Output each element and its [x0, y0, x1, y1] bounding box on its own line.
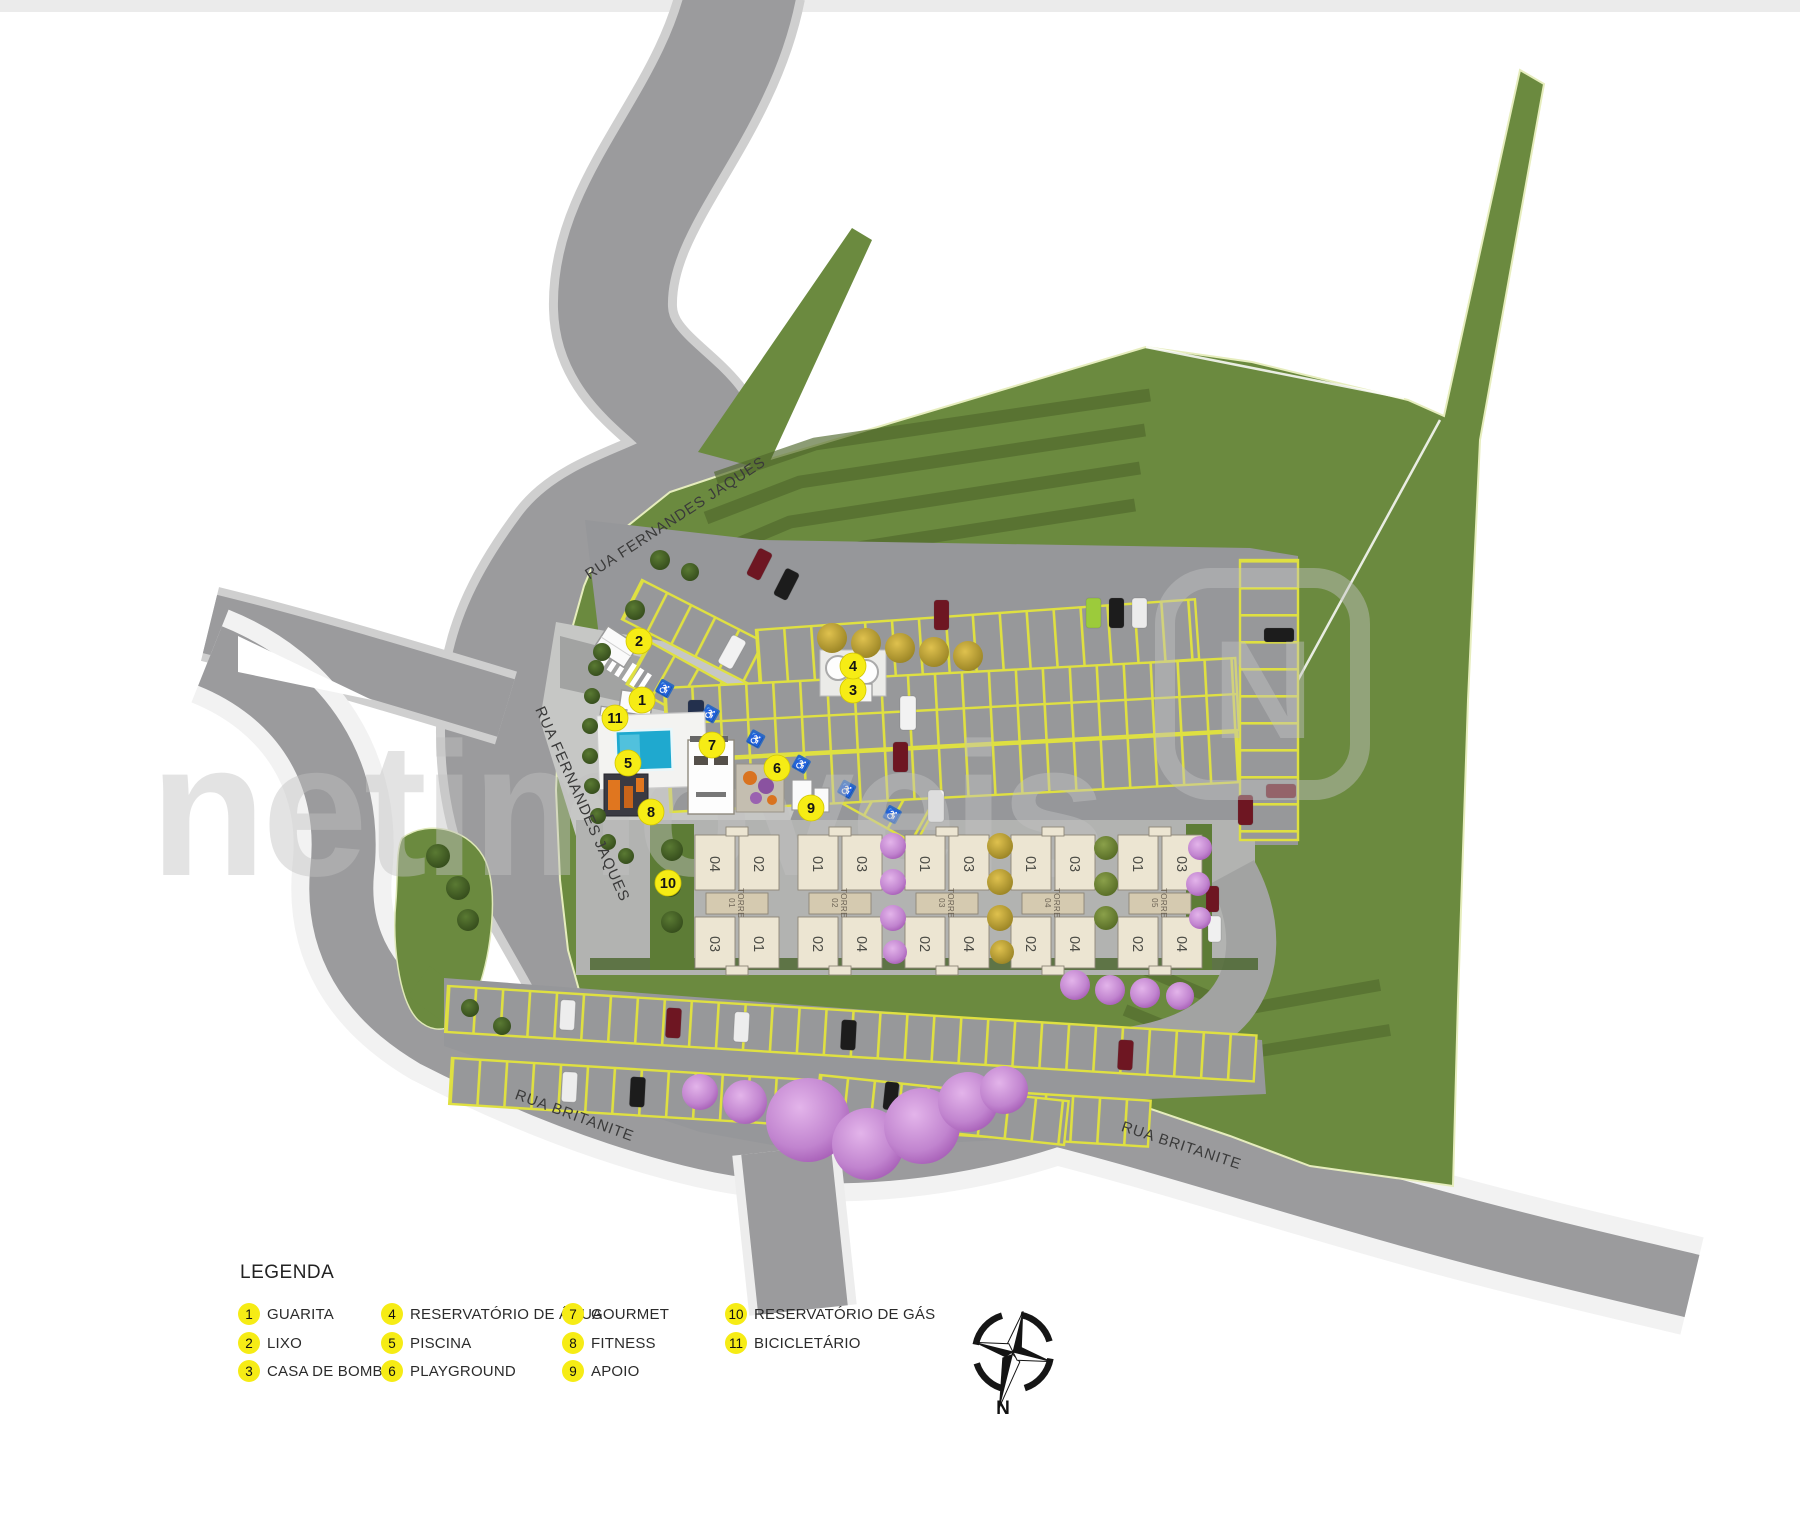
tower-number: 02 [830, 898, 839, 908]
legend-number: 10 [725, 1303, 747, 1325]
svg-text:5: 5 [624, 756, 632, 772]
legend-number: 5 [381, 1332, 403, 1354]
legend-number: 4 [381, 1303, 403, 1325]
tower-label: TORRE [946, 888, 955, 918]
legend-item-11: 11BICICLETÁRIO [725, 1332, 861, 1354]
unit-number: 02 [1129, 936, 1145, 952]
legend-label: LIXO [267, 1335, 302, 1352]
unit-number: 01 [1129, 856, 1145, 872]
top-border [0, 0, 1800, 12]
unit-number: 01 [809, 856, 825, 872]
unit-number: 03 [1173, 856, 1189, 872]
legend-title: LEGENDA [240, 1262, 334, 1284]
map-marker-8: 8 [638, 799, 664, 825]
legend-number: 9 [562, 1360, 584, 1382]
map-marker-3: 3 [840, 677, 866, 703]
map-marker-1: 1 [629, 687, 655, 713]
tower-number: 04 [1043, 898, 1052, 908]
pink-tree-column-east [1186, 836, 1212, 929]
map-marker-10: 10 [655, 870, 681, 896]
legend-number: 1 [238, 1303, 260, 1325]
unit-number: 04 [853, 936, 869, 952]
map-marker-5: 5 [615, 750, 641, 776]
unit-number: 04 [1173, 936, 1189, 952]
legend-item-10: 10RESERVATÓRIO DE GÁS [725, 1303, 935, 1325]
legend-item-9: 9APOIO [562, 1360, 640, 1382]
tower-number: 01 [727, 898, 736, 908]
site-plan: ♿ ♿ ♿ ♿ ♿ ♿ netimóveis N [0, 0, 1800, 1538]
legend-number: 6 [381, 1360, 403, 1382]
svg-text:4: 4 [849, 659, 857, 675]
legend-item-5: 5PISCINA [381, 1332, 471, 1354]
tower-number: 05 [1150, 898, 1159, 908]
map-marker-9: 9 [798, 795, 824, 821]
road-stub [786, 1150, 803, 1310]
legend-label: PISCINA [410, 1335, 471, 1352]
unit-number: 02 [750, 856, 766, 872]
unit-number: 01 [1022, 856, 1038, 872]
unit-number: 02 [1022, 936, 1038, 952]
olive-tree-column [1094, 836, 1118, 930]
tower-label: TORRE [736, 888, 745, 918]
legend-label: GUARITA [267, 1306, 334, 1323]
svg-text:6: 6 [773, 761, 781, 777]
legend-number: 8 [562, 1332, 584, 1354]
legend-label: FITNESS [591, 1335, 656, 1352]
watermark-logo-letter: N [1212, 611, 1313, 768]
legend-label: BICICLETÁRIO [754, 1335, 861, 1352]
svg-text:9: 9 [807, 801, 815, 817]
unit-number: 01 [750, 936, 766, 952]
legend-label: RESERVATÓRIO DE GÁS [754, 1306, 935, 1323]
legend-item-8: 8FITNESS [562, 1332, 656, 1354]
legend-label: GOURMET [591, 1306, 669, 1323]
tower-number: 03 [937, 898, 946, 908]
tower-label: TORRE [839, 888, 848, 918]
svg-text:11: 11 [607, 711, 622, 727]
legend-item-6: 6PLAYGROUND [381, 1360, 516, 1382]
tower-label: TORRE [1052, 888, 1061, 918]
map-marker-11: 11 [602, 705, 628, 731]
unit-number: 03 [1066, 856, 1082, 872]
unit-number: 03 [960, 856, 976, 872]
legend-label: PLAYGROUND [410, 1363, 516, 1380]
legend-item-1: 1GUARITA [238, 1303, 334, 1325]
legend-item-3: 3CASA DE BOMBAS [238, 1360, 403, 1382]
svg-text:3: 3 [849, 683, 857, 699]
legend-number: 7 [562, 1303, 584, 1325]
legend-number: 11 [725, 1332, 747, 1354]
unit-number: 03 [853, 856, 869, 872]
unit-number: 02 [916, 936, 932, 952]
legend-number: 3 [238, 1360, 260, 1382]
map-marker-4: 4 [840, 653, 866, 679]
legend-item-2: 2LIXO [238, 1332, 302, 1354]
svg-text:10: 10 [660, 876, 676, 892]
unit-number: 03 [706, 936, 722, 952]
svg-text:2: 2 [635, 634, 643, 650]
unit-number: 04 [1066, 936, 1082, 952]
map-marker-7: 7 [699, 732, 725, 758]
svg-text:1: 1 [638, 693, 646, 709]
unit-number: 04 [960, 936, 976, 952]
tower-label: TORRE [1159, 888, 1168, 918]
map-marker-2: 2 [626, 628, 652, 654]
svg-text:8: 8 [647, 805, 655, 821]
map-marker-6: 6 [764, 755, 790, 781]
unit-number: 04 [706, 856, 722, 872]
legend-number: 2 [238, 1332, 260, 1354]
svg-text:7: 7 [708, 738, 716, 754]
compass-north-label: N [996, 1398, 1010, 1419]
unit-number: 02 [809, 936, 825, 952]
unit-number: 01 [916, 856, 932, 872]
legend-label: APOIO [591, 1363, 640, 1380]
legend-item-7: 7GOURMET [562, 1303, 669, 1325]
